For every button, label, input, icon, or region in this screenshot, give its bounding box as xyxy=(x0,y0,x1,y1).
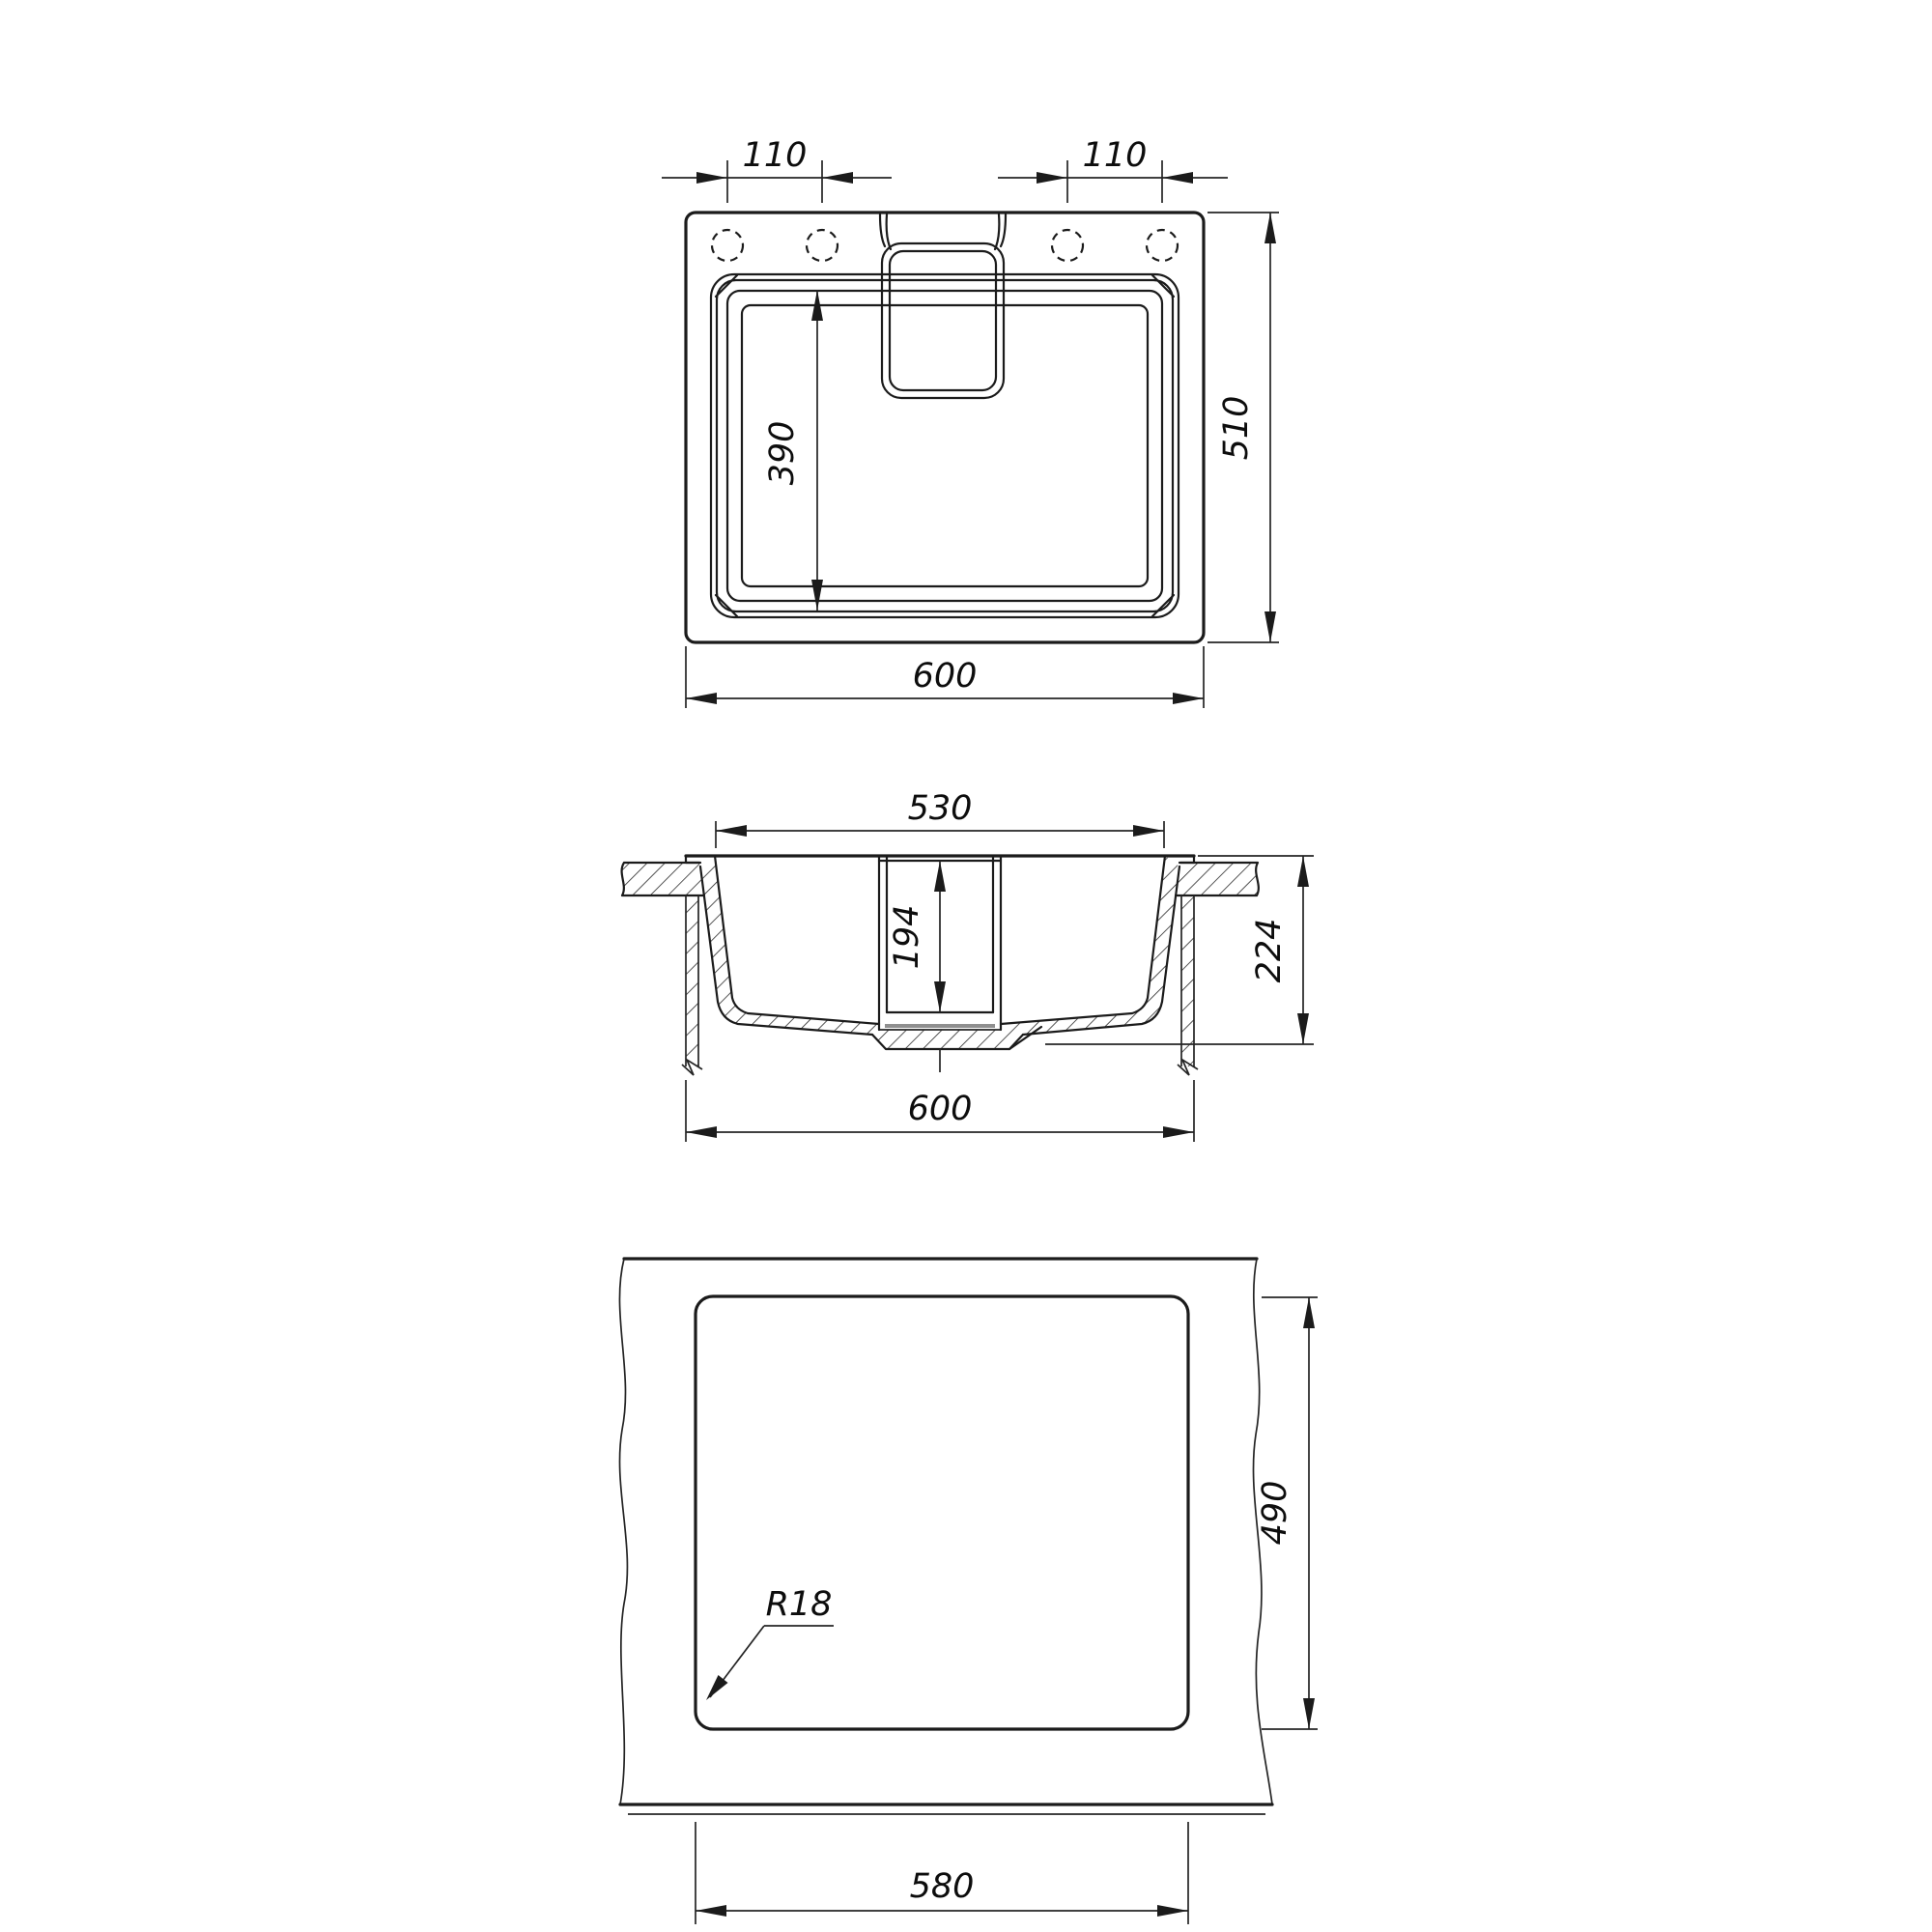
dim-cutout-width: 580 xyxy=(696,1822,1188,1924)
faucet-hole-3 xyxy=(1052,230,1083,261)
cabinet-panel-left xyxy=(682,895,702,1075)
dim-label-overall-width-top: 600 xyxy=(913,657,978,696)
dim-hole-pitch-right: 110 xyxy=(998,136,1228,203)
countertop-panel xyxy=(619,1259,1272,1814)
dim-hole-pitch-left: 110 xyxy=(662,136,892,203)
drawing-page: 110 110 510 390 xyxy=(0,0,1932,1932)
radius-callout: R18 xyxy=(706,1585,834,1700)
cabinet-panel-right xyxy=(1178,895,1198,1075)
dim-label-cutout-width: 580 xyxy=(910,1867,975,1906)
dim-overall-width-top: 600 xyxy=(686,646,1204,708)
dim-label-cutout-depth: 490 xyxy=(1256,1481,1294,1546)
dim-label-overall-width-section: 600 xyxy=(908,1090,973,1128)
dim-label-hole-pitch-right: 110 xyxy=(1083,136,1148,175)
countertop-section-right xyxy=(1176,863,1259,895)
dim-label-bowl-length: 390 xyxy=(763,421,802,486)
section-view: 530 194 224 600 xyxy=(622,789,1314,1142)
dim-label-overall-height: 224 xyxy=(1250,919,1289,983)
countertop-section-left xyxy=(622,863,704,895)
top-view: 110 110 510 390 xyxy=(662,136,1279,708)
faucet-hole-2 xyxy=(807,230,838,261)
cutout-rectangle xyxy=(696,1296,1188,1729)
dim-label-bowl-opening: 530 xyxy=(908,789,973,828)
cutout-view: R18 490 580 xyxy=(619,1259,1318,1924)
dim-label-hole-pitch-left: 110 xyxy=(743,136,808,175)
technical-drawing-canvas: 110 110 510 390 xyxy=(0,0,1932,1932)
dim-overall-depth: 510 xyxy=(1207,213,1279,642)
dim-cutout-depth: 490 xyxy=(1256,1297,1318,1729)
dim-overall-width-section: 600 xyxy=(686,1080,1194,1142)
faucet-hole-1 xyxy=(712,230,743,261)
dim-label-recess-depth: 194 xyxy=(888,905,926,970)
faucet-hole-4 xyxy=(1147,230,1178,261)
dim-bowl-length: 390 xyxy=(763,290,823,611)
dim-label-overall-depth: 510 xyxy=(1217,396,1256,461)
dim-label-corner-radius: R18 xyxy=(766,1585,833,1624)
dim-bowl-opening: 530 xyxy=(716,789,1164,848)
